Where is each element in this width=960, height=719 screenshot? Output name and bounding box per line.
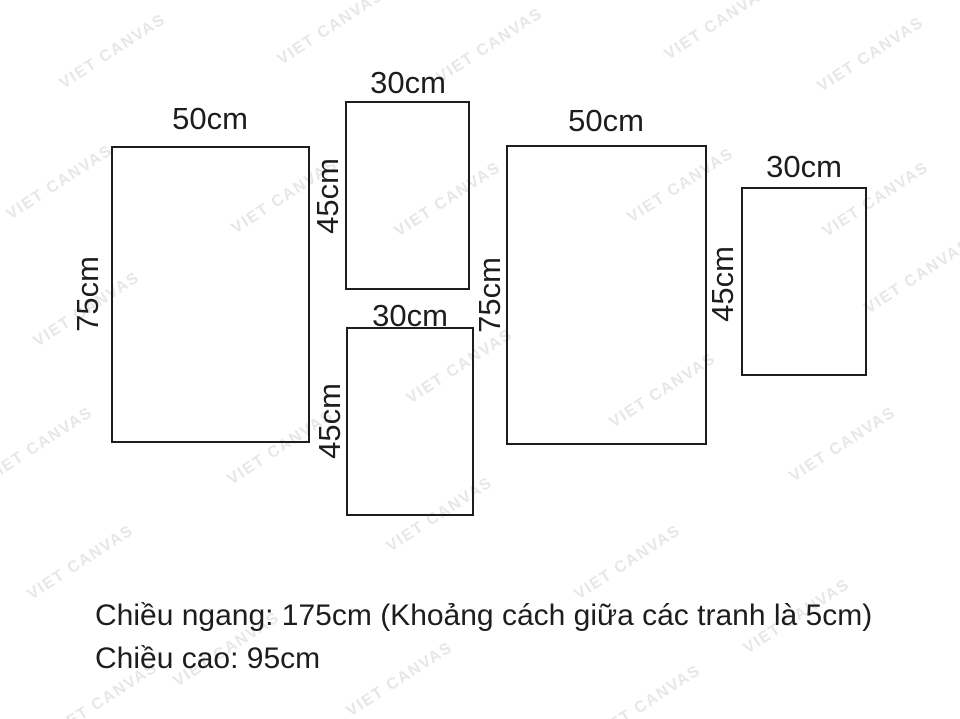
height-label-right: 75cm: [430, 235, 550, 355]
caption-line-vertical: Chiều cao: 95cm: [95, 637, 872, 680]
height-label-bottom-middle: 45cm: [270, 361, 390, 481]
height-label-bottom-middle-text: 45cm: [312, 383, 348, 459]
caption-line-horizontal: Chiều ngang: 175cm (Khoảng cách giữa các…: [95, 594, 872, 637]
width-label-top-middle: 30cm: [328, 66, 488, 100]
height-label-far-right: 45cm: [663, 224, 783, 344]
height-label-top-middle: 45cm: [268, 136, 388, 256]
watermark-text: VIET CANVAS: [662, 0, 775, 64]
watermark-text: VIET CANVAS: [787, 404, 900, 486]
watermark-text: VIET CANVAS: [0, 404, 96, 486]
watermark-text: VIET CANVAS: [815, 14, 928, 96]
caption: Chiều ngang: 175cm (Khoảng cách giữa các…: [95, 594, 872, 680]
watermark-text: VIET CANVAS: [57, 11, 170, 93]
height-label-left-text: 75cm: [70, 256, 106, 332]
watermark-text: VIET CANVAS: [4, 142, 117, 224]
watermark-text: VIET CANVAS: [275, 0, 388, 69]
width-label-far-right: 30cm: [724, 150, 884, 184]
watermark-text: VIET CANVAS: [572, 522, 685, 604]
dimension-diagram: VIET CANVASVIET CANVASVIET CANVASVIET CA…: [0, 0, 960, 719]
watermark-text: VIET CANVAS: [25, 522, 138, 604]
height-label-far-right-text: 45cm: [705, 246, 741, 322]
height-label-left: 75cm: [28, 234, 148, 354]
height-label-right-text: 75cm: [472, 257, 508, 333]
width-label-left: 50cm: [130, 102, 290, 136]
height-label-top-middle-text: 45cm: [310, 158, 346, 234]
width-label-right: 50cm: [526, 104, 686, 138]
watermark-text: VIET CANVAS: [862, 236, 960, 318]
